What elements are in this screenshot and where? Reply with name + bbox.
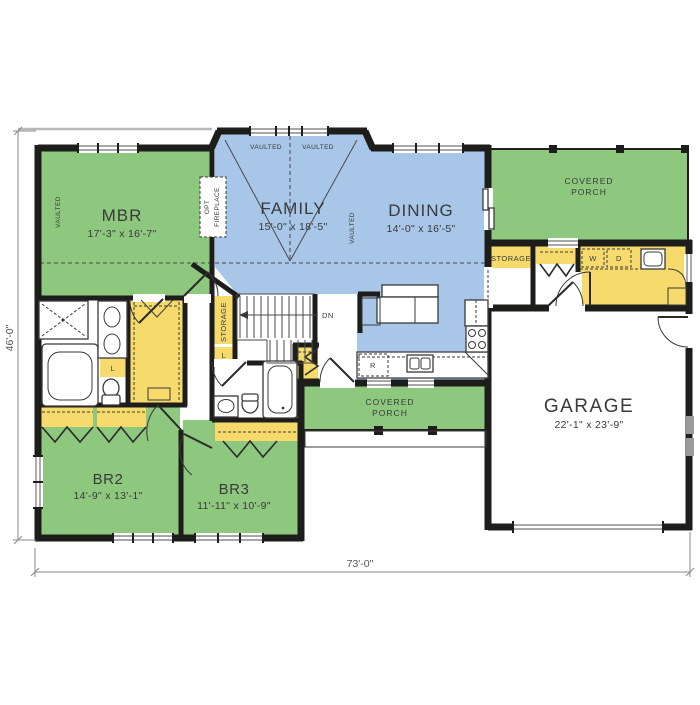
master-shower [39,301,88,339]
window-laundry-right [684,254,694,282]
mud-closet-bifold [540,264,574,276]
master-vanity [98,301,127,358]
label-hall-linen: L [222,351,227,360]
kitchen-sink [407,355,433,372]
label-refrigerator: R [370,361,376,370]
label-storage-room: STORAGE [491,254,531,263]
label-overall-depth: 46'-0" [4,324,16,351]
kitchen-range [466,326,488,352]
laundry-sink [641,249,665,269]
label-br2-dims: 14'-9" x 13'-1" [73,490,142,502]
window-br3-bottom [195,533,263,543]
floor-plan-page: MBR 17'-3" x 16'-7" FAMILY 15'-0" x 18'-… [0,0,700,700]
label-opt-fireplace-1: OPT [204,200,211,215]
label-opt-fireplace-2: FIREPLACE [214,187,221,227]
window-br2-bottom [113,533,173,543]
label-mbr: MBR [102,206,143,225]
master-tub [42,344,98,406]
label-br3-dims: 11'-11" x 10'-9" [197,500,271,512]
label-dining: DINING [388,201,454,220]
window-family-top [250,126,328,136]
room-family-dining-kitchen-floor [215,131,487,381]
hall-bath-vanity [214,396,238,417]
front-porch-step [305,431,486,447]
br2-closet1-floor [40,407,93,427]
label-vaulted-mbr: VAULTED [55,196,62,228]
label-dining-dims: 14'-0" x 16'-5" [386,223,455,235]
label-mbr-dims: 17'-3" x 16'-7" [87,228,156,240]
garage-door [513,521,663,533]
label-rear-porch-2: PORCH [571,187,607,197]
door-front-entry [320,358,354,382]
label-dryer: D [616,254,622,263]
master-toilet [102,379,120,405]
window-mbr-top [78,143,138,153]
label-stairs-down: DN [322,311,334,320]
label-family: FAMILY [260,199,325,218]
label-br3: BR3 [219,481,250,498]
label-vaulted-dining: VAULTED [349,212,356,244]
br2-closet2-floor [97,407,146,427]
label-garage-dims: 22'-1" x 23'-9" [554,419,623,431]
label-master-linen: L [111,364,116,373]
window-dining-top [393,143,463,153]
label-overall-width: 73'-0" [347,558,374,570]
door-garage-service [658,317,688,347]
label-br2: BR2 [93,471,124,488]
mud-closet-floor [536,246,578,264]
label-washer: W [589,254,597,263]
floor-plan: MBR 17'-3" x 16'-7" FAMILY 15'-0" x 18'-… [0,0,700,700]
kitchen-island [377,285,438,323]
window-laundry-top [548,238,578,248]
label-vaulted-family-1: VAULTED [250,144,282,151]
window-br2-left [33,456,43,508]
label-front-porch-2: PORCH [372,408,408,418]
label-vaulted-family-2: VAULTED [302,144,334,151]
label-hall-storage: STORAGE [219,302,228,342]
hall-bath-toilet [242,394,258,413]
label-garage: GARAGE [544,396,634,417]
label-rear-porch-1: COVERED [564,176,613,186]
hall-bath-tub [263,361,297,418]
master-wic-floor [128,298,185,405]
label-family-dims: 15'-0" x 18'-5" [258,221,327,233]
label-front-porch-1: COVERED [365,397,414,407]
